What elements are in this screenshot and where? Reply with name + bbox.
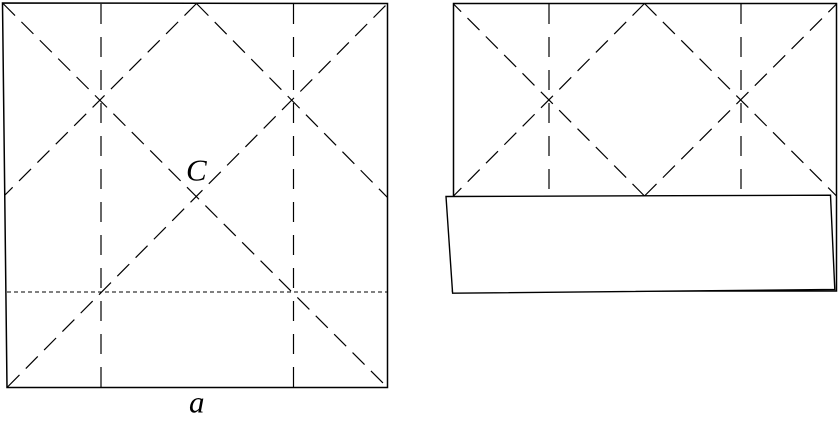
left-diagonal-crease-topmid-leftmid bbox=[5, 4, 197, 196]
center-point-label: C bbox=[186, 153, 207, 188]
right-panel bbox=[446, 4, 837, 294]
left-diagonal-crease-bl-tr bbox=[8, 4, 388, 387]
left-diagonal-crease-tl-br bbox=[3, 4, 387, 388]
left-panel: C a bbox=[3, 3, 388, 420]
origami-diagram-canvas: C a bbox=[0, 0, 840, 436]
side-length-label: a bbox=[189, 385, 205, 420]
folded-flap bbox=[446, 195, 835, 293]
origami-fold-diagram: C a bbox=[0, 0, 840, 436]
